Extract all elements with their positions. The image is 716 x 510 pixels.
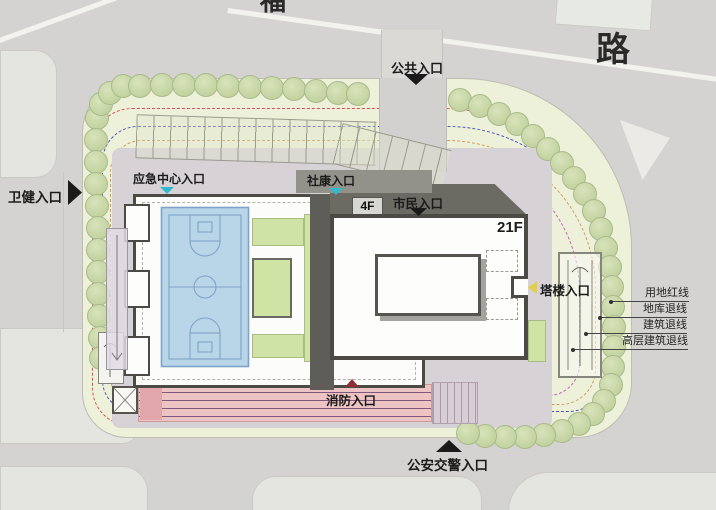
tree-icon: [216, 74, 240, 98]
fire-lane: [138, 384, 432, 422]
tree-icon: [128, 74, 152, 98]
fire-lane-end-pad: [140, 386, 162, 420]
basketball-court: [160, 206, 250, 368]
ramp-box: [112, 386, 138, 414]
parcel-top-left: [0, 50, 57, 178]
site-plan: 路 福: [0, 0, 716, 510]
health-entrance-arrow-icon: [68, 180, 82, 205]
parcel-bottom-2: [252, 476, 482, 510]
emergency-entrance-label: 应急中心入口: [133, 170, 205, 187]
legend-label-basement: 地库退线: [643, 303, 687, 315]
tree-icon: [456, 421, 480, 445]
basement-ramp-arrow: [107, 229, 127, 369]
health-entrance-label: 卫健入口: [8, 186, 62, 206]
planter-2: [252, 258, 292, 318]
parcel-bottom-1: [0, 466, 148, 510]
road-name-partial: 福: [260, 0, 286, 18]
fire-entrance-label: 消防入口: [326, 390, 376, 409]
lane-line-left: [63, 172, 64, 332]
legend-label-highrise: 高层建筑退线: [622, 335, 688, 347]
road-name: 路: [596, 22, 630, 71]
police-entrance-label: 公安交警入口: [407, 454, 488, 474]
legend-label-building: 建筑退线: [643, 319, 687, 331]
basement-ramp-west: [106, 228, 128, 370]
east-ramp: [558, 252, 602, 378]
planter-4: [528, 320, 546, 362]
clinic-entrance-label: 社康入口: [307, 172, 355, 189]
tree-icon: [84, 172, 108, 196]
tree-icon: [260, 76, 284, 100]
legend-label-redline: 用地红线: [645, 287, 689, 299]
tree-icon: [84, 128, 108, 152]
tree-icon: [150, 73, 174, 97]
tower-entrance-label: 塔楼入口: [540, 280, 590, 299]
tree-icon: [282, 77, 306, 101]
planter-3: [252, 334, 304, 358]
tree-icon: [85, 194, 109, 218]
traffic-island: [620, 120, 670, 180]
legend-item-highrise: 高层建筑退线: [573, 332, 688, 350]
tree-icon: [304, 79, 328, 103]
hatched-pad: [432, 382, 478, 424]
tree-icon: [84, 150, 108, 174]
ramp-box-x-lines: [114, 388, 136, 412]
planter-1: [252, 218, 304, 246]
parcel-bottom-3: [508, 472, 716, 510]
road-median-line-left: [0, 0, 117, 47]
tower-dashed-box-2: [486, 298, 518, 320]
tree-icon: [172, 73, 196, 97]
east-ramp-lines: [560, 254, 600, 376]
police-entrance-arrow-icon: [436, 440, 462, 452]
podium-floor-label: 4F: [352, 197, 383, 215]
tower-entrance-notch: [511, 276, 528, 298]
tree-icon: [346, 82, 370, 106]
tree-icon: [194, 73, 218, 97]
tower-dashed-box-1: [486, 250, 518, 272]
tower-roof-core: [375, 254, 481, 316]
tower-floor-label: 21F: [497, 219, 523, 236]
tree-icon: [238, 75, 262, 99]
